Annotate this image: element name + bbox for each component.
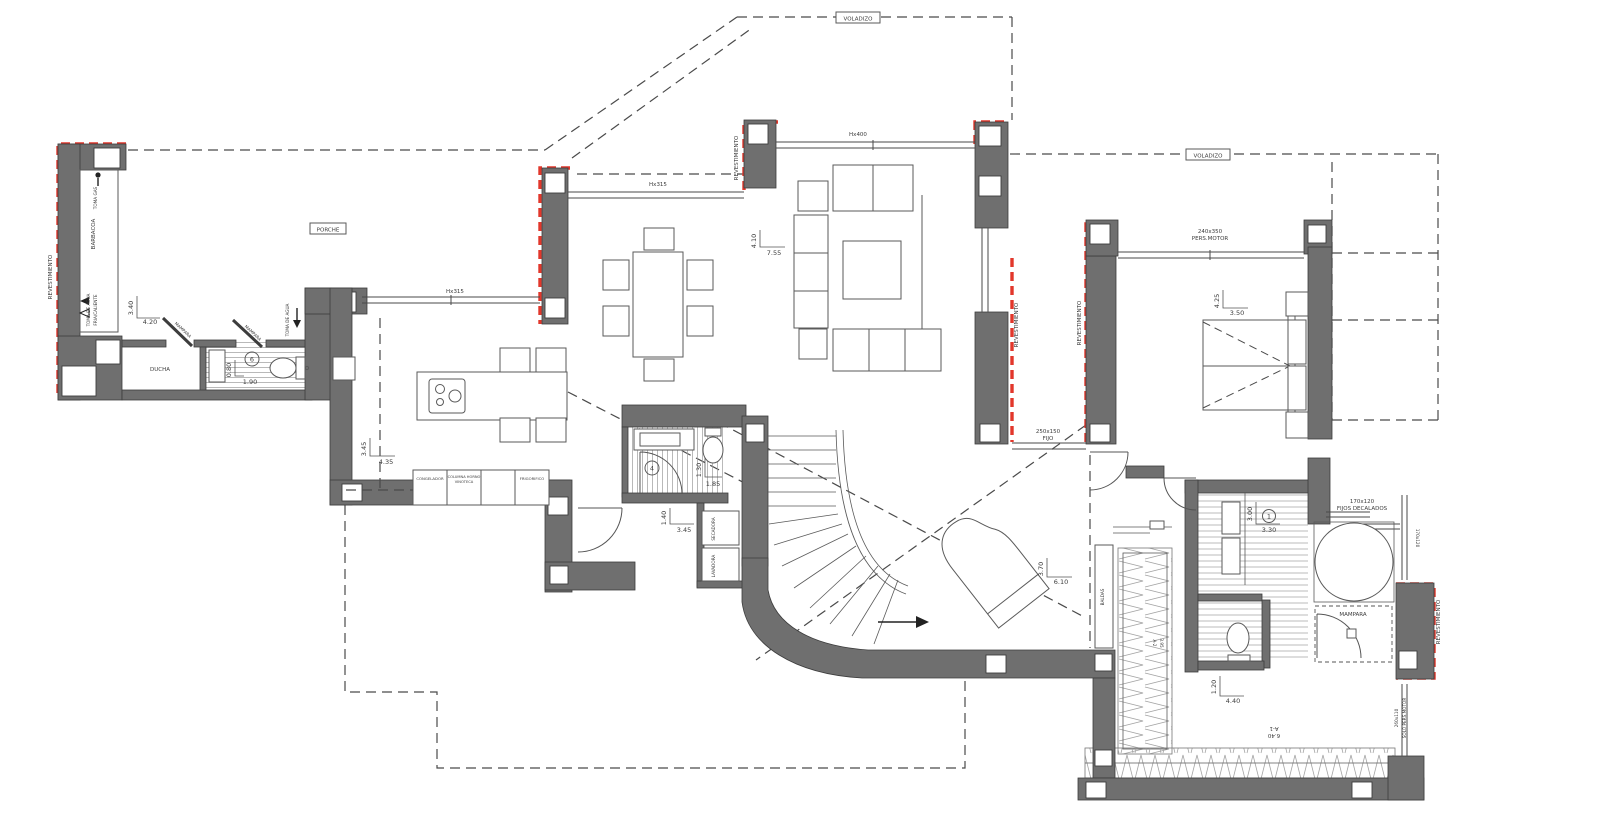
window-hx315-living: [568, 192, 744, 198]
round-bathtub: [1315, 523, 1393, 601]
fijos-decalados-label: FIJOS DECALADOS: [1337, 506, 1388, 512]
window-living-side: [982, 228, 988, 312]
dim-living-h: 7.55: [767, 249, 781, 257]
dryer: [702, 511, 739, 545]
bath1-wc: [270, 358, 296, 378]
dim-kitchen-v: 3.45: [360, 442, 368, 456]
dim-porche-v: 3.40: [127, 301, 135, 315]
dim-living-v: 4.10: [750, 234, 758, 248]
fijos-size-label: 170x120: [1350, 499, 1375, 505]
window-170x120-side: [1402, 495, 1407, 580]
ref-a1-length: 6.40: [1267, 732, 1280, 738]
dining-table-set: [603, 228, 713, 381]
hx315-kitchen-label: Hx315: [446, 289, 464, 295]
dim-vanity-v: 3.00: [1246, 507, 1254, 521]
bath1-basin: [209, 350, 225, 382]
ref-a2-length: 3.95: [1159, 638, 1164, 648]
master-wc: [1227, 623, 1249, 653]
window-pers-motor: [1118, 250, 1304, 260]
sofa-group: [794, 165, 941, 371]
ref-a1-code: A-1: [1269, 725, 1278, 731]
barbacoa-label: BARBACOA: [91, 218, 97, 249]
toma-agua-fc-label-2: FRIA/CALIENTE: [93, 294, 98, 326]
bath2-wc: [703, 437, 723, 463]
grand-piano: [931, 502, 1049, 628]
terrace-strip-vertical: [1118, 548, 1172, 754]
window-260x110-label: 260x110: [1394, 708, 1399, 727]
laundry-machines: [702, 511, 739, 581]
toma-gas-label: TOMA GAS: [93, 186, 98, 210]
dim-terrace-v: 1.20: [1210, 680, 1218, 694]
vanity-basin-1: [1222, 502, 1240, 534]
ref-circle-vanity: 1: [1267, 513, 1271, 521]
baldas-label: BALDAS: [1100, 588, 1105, 605]
pers-motor-label: PERS.MOTOR: [1192, 236, 1229, 242]
porche-label: PORCHE: [317, 228, 340, 234]
kitchen-sink: [333, 357, 355, 380]
hob: [429, 379, 465, 413]
dim-piano-h: 6.10: [1054, 578, 1068, 586]
ducha-label: DUCHA: [150, 367, 170, 373]
fijo-label: FIJO: [1043, 436, 1054, 442]
frigorifico-label: FRIGORIFICO: [520, 476, 545, 481]
columna-horno-label: COLUMNA HORNO: [448, 475, 481, 479]
shower-drain: [1347, 629, 1356, 638]
dim-hall-h: 3.45: [677, 526, 691, 534]
dim-bath2-h: 1.85: [706, 480, 720, 488]
window-170x120-label: 170x120: [1415, 529, 1420, 548]
toma-agua-label: TOMA DE AGUA: [285, 303, 290, 337]
window-fijo: [1012, 443, 1086, 449]
toma-agua-fc-label-1: TOMA DE AGUA: [86, 293, 91, 327]
dim-kitchen-h: 4.35: [379, 458, 393, 466]
revestimiento-master: REVESTIMIENTO: [1436, 599, 1442, 644]
kitchen-island: [417, 348, 567, 442]
dim-porche-h: 4.20: [143, 318, 157, 326]
voladizo-label-right: VOLADIZO: [1194, 154, 1224, 160]
dim-bedroom-h: 3.50: [1230, 309, 1244, 317]
hx400-label: Hx400: [849, 132, 867, 138]
floor-plan-page: VOLADIZO VOLADIZO PORCHE REVESTIMIENTO R…: [0, 0, 1600, 816]
fijo-size-label: 250x150: [1036, 429, 1061, 435]
dim-piano-v: 3.70: [1037, 562, 1045, 576]
window-hx400: [776, 140, 975, 150]
window-hx315-kitchen: [362, 295, 540, 305]
bath2-basin: [634, 429, 694, 450]
bed: [1203, 316, 1295, 414]
lavadora-label: LAVADORA: [711, 555, 716, 578]
hall-door: [578, 508, 622, 552]
floor-plan-drawing: VOLADIZO VOLADIZO PORCHE REVESTIMIENTO R…: [0, 0, 1600, 816]
vanity-basin-2: [1222, 538, 1240, 574]
ref-a2-code: A-2: [1152, 640, 1157, 647]
coffee-table: [843, 241, 901, 299]
solo-pers-motor-label: SOLO PERS.MOTOR: [1402, 698, 1407, 739]
vinoteca-label: VINOTECA: [455, 480, 474, 484]
revestimiento-left: REVESTIMIENTO: [48, 254, 54, 299]
dim-bath2-v: 1.30: [695, 463, 703, 477]
dim-bath1-v: 0.80: [225, 363, 233, 377]
mampara-master-label: MAMPARA: [1339, 612, 1367, 618]
dim-bedroom-v: 4.25: [1213, 294, 1221, 308]
dim-hall-v: 1.40: [660, 511, 668, 525]
master-corridor-door-1: [1090, 452, 1128, 490]
revestimiento-living: REVESTIMIENTO: [734, 135, 740, 180]
stair-direction-arrow: [878, 616, 929, 628]
pers-motor-size-label: 240x350: [1198, 229, 1223, 235]
ref-circle-bath1: 6: [250, 356, 254, 364]
revestimiento-corridor-right: REVESTIMIENTO: [1077, 300, 1083, 345]
ref-circle-bath2: 4: [650, 465, 654, 473]
hx315-living-label: Hx315: [649, 182, 667, 188]
secadora-label: SECADORA: [711, 517, 716, 540]
water-point-icon: [293, 320, 301, 328]
washer: [702, 548, 739, 581]
stair-treads: [768, 430, 908, 644]
gas-tap-icon: [95, 172, 100, 177]
revestimiento-corridor-left: REVESTIMIENTO: [1014, 302, 1020, 347]
terrace-fixture: [1150, 521, 1164, 529]
dim-terrace-h: 4.40: [1226, 697, 1240, 705]
dim-bath1-h: 1.90: [243, 378, 257, 386]
dim-vanity-h: 3.30: [1262, 526, 1276, 534]
congelador-label: CONGELADOR: [416, 476, 444, 481]
voladizo-label-top: VOLADIZO: [844, 17, 874, 23]
